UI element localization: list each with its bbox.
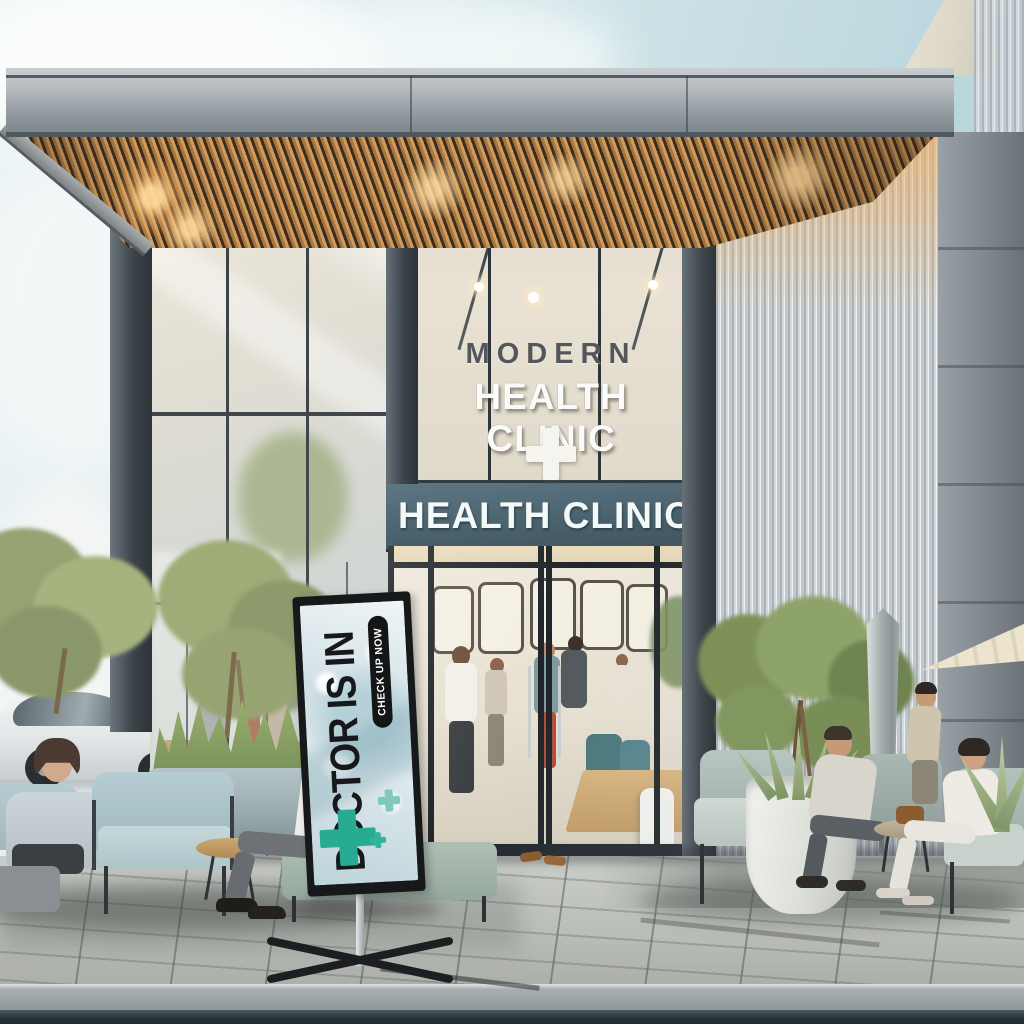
medical-cross-icon	[377, 789, 400, 812]
medical-cross-icon	[526, 428, 576, 480]
fascia-seam	[686, 76, 688, 132]
banner-cta-pill: CHECK UP NOW	[367, 615, 393, 728]
chair-leg	[104, 866, 108, 914]
medical-cross-icon	[318, 808, 377, 867]
person-shoe	[902, 896, 934, 905]
person-standing-torso	[906, 705, 942, 765]
interior-sign-line1: MODERN	[416, 338, 686, 371]
entrance-sign-text: HEALTH CLINIC	[386, 495, 704, 537]
person-standing-hair	[915, 682, 937, 694]
person-standing-legs	[912, 760, 938, 804]
light-glow	[474, 282, 484, 292]
banner-shadow	[292, 898, 442, 920]
banner-face: DOCTOR IS IN CHECK UP NOW	[300, 600, 419, 885]
banner-pole	[356, 886, 364, 966]
entrance-doors	[388, 546, 702, 862]
person-woman-left-legs	[0, 866, 60, 912]
curb	[0, 984, 1024, 1010]
glass-tint	[388, 546, 702, 862]
person-woman-right-hair	[958, 738, 990, 756]
chair-arm-frame	[92, 800, 96, 870]
medical-cross-icon	[370, 832, 387, 849]
clinic-storefront-photo: MODERN HEALTH CLINIC HEALTH CLINIC	[0, 0, 1024, 1024]
bench-leg	[482, 896, 486, 922]
tree-foliage	[716, 686, 800, 758]
entrance-sign-band: HEALTH CLINIC	[386, 480, 704, 552]
person-shoe	[836, 880, 866, 891]
person-shoe	[248, 906, 286, 919]
sofa-leg	[950, 862, 954, 914]
interior-light-fixture	[632, 234, 668, 350]
background-corrugated-wall	[974, 0, 1024, 140]
chair-leg	[700, 844, 704, 904]
light-glow	[648, 280, 658, 290]
light-glow	[528, 292, 539, 303]
promo-banner: DOCTOR IS IN CHECK UP NOW	[292, 591, 426, 897]
road	[0, 1010, 1024, 1024]
fascia-seam	[410, 76, 412, 132]
person-shoe	[796, 876, 828, 888]
person-man-reading-hair	[824, 726, 852, 740]
canopy-fascia	[6, 68, 954, 137]
